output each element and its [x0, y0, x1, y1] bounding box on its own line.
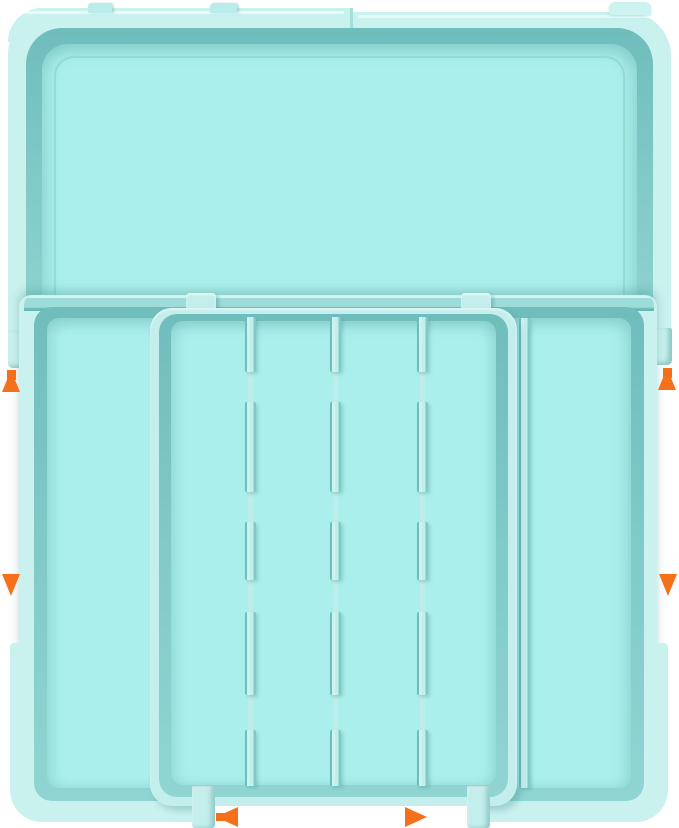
divider-segment — [417, 730, 428, 786]
divider-segment — [245, 317, 256, 372]
upper-tray-corner-cap — [609, 2, 651, 15]
divider-segment — [245, 730, 256, 786]
arrow-stripe — [663, 371, 672, 376]
product-image — [0, 0, 679, 828]
divider-segment — [417, 402, 428, 492]
divider-segment — [330, 730, 341, 786]
divider-segment — [417, 522, 428, 580]
arrow-stripe — [7, 373, 16, 378]
divider-segment — [330, 402, 341, 492]
upper-tray-edge-highlight-left — [18, 11, 344, 14]
divider-segment — [330, 317, 341, 372]
divider-segment — [245, 402, 256, 492]
bottom-expansion-gap — [215, 806, 467, 828]
divider-segment — [330, 612, 341, 695]
inner-tray-divider-1 — [245, 317, 256, 786]
divider-segment — [417, 317, 428, 372]
divider-segment — [417, 612, 428, 695]
inner-tray-divider-2 — [330, 317, 341, 786]
divider-segment — [245, 522, 256, 580]
upper-tray-edge-highlight-right — [358, 15, 652, 18]
upper-tray-top-tab-1 — [88, 3, 112, 13]
divider-segment — [330, 522, 341, 580]
arrow-stripe — [219, 813, 223, 821]
inner-tray-foot-right — [467, 786, 490, 828]
inner-tray-divider-3 — [417, 317, 428, 786]
divider-segment — [245, 612, 256, 695]
arrow-head — [2, 574, 20, 596]
lower-shell-middle-wall — [519, 318, 530, 788]
arrow-head — [405, 807, 427, 827]
upper-tray-top-tab-2 — [210, 3, 237, 13]
inner-tray-foot-left — [192, 786, 215, 828]
upper-tray-inner-ridge — [54, 56, 625, 328]
arrow-head — [659, 574, 677, 596]
